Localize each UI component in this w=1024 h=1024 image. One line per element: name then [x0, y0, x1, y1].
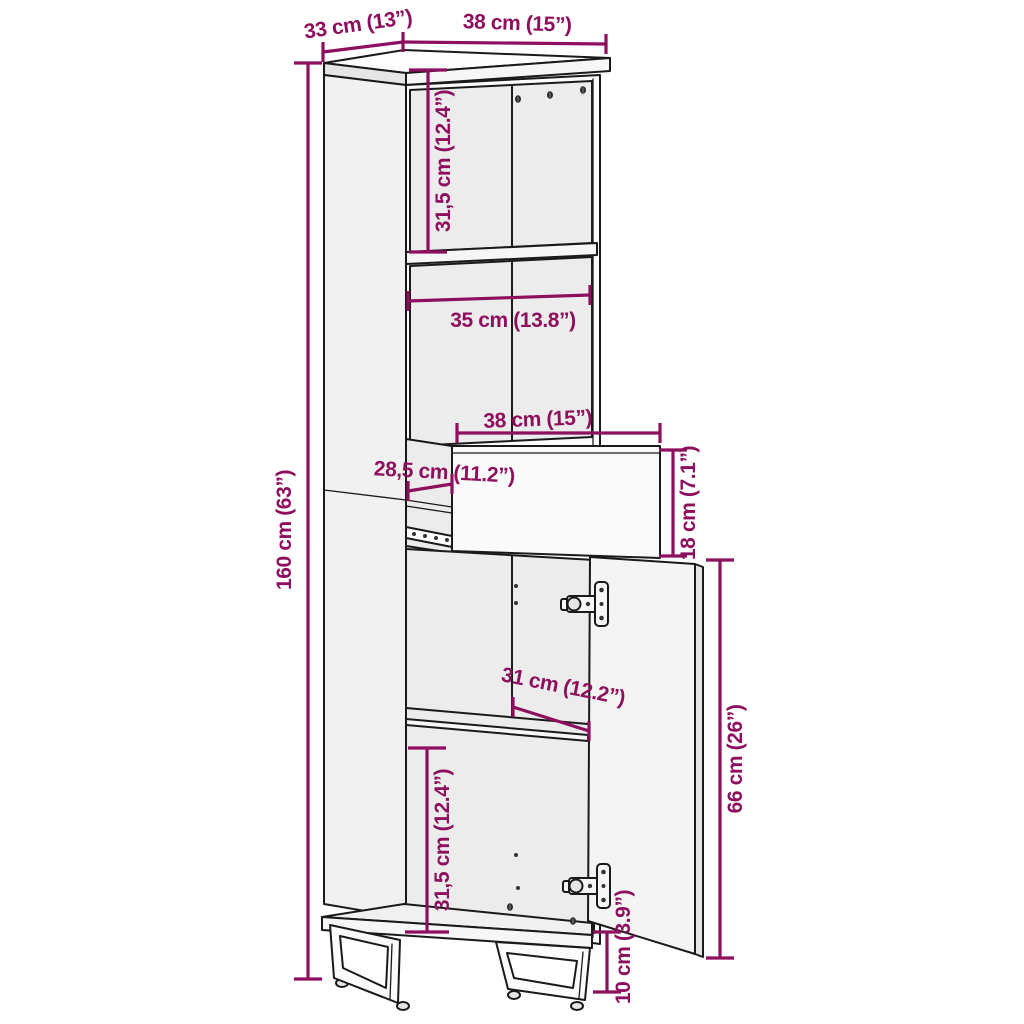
dim-upper-inner-height-label: 31,5 cm (12.4”) — [432, 90, 455, 232]
drawer-opening — [406, 439, 452, 553]
left-side-panel-face — [324, 75, 406, 918]
dimension-door-height: 66 cm (26”) — [706, 560, 747, 958]
shelf-pin-hole — [514, 601, 518, 605]
rail-hole — [445, 538, 449, 542]
dim-total-height-label: 160 cm (63”) — [273, 470, 296, 590]
rail-hole — [423, 534, 427, 538]
cabinet-diagram-svg: 33 cm (13”) 38 cm (15”) 31,5 cm (12.4”) … — [0, 0, 1024, 1024]
dim-top-depth-label: 33 cm (13”) — [303, 6, 414, 44]
dim-top-width-label: 38 cm (15”) — [462, 10, 572, 37]
dim-drawer-width-label: 38 cm (15”) — [483, 406, 593, 433]
dim-lower-inner-height-label: 31,5 cm (12.4”) — [431, 769, 454, 911]
dim-leg-height-label: 10 cm (3.9”) — [612, 890, 635, 1004]
dim-line — [403, 42, 606, 44]
shelf-pin-hole — [514, 584, 518, 588]
leg-foot — [508, 991, 520, 999]
leg-front-left — [330, 925, 409, 1010]
dim-drawer-height-label: 18 cm (7.1”) — [677, 446, 700, 560]
left-side-panel — [324, 75, 406, 918]
dim-inner-width-label: 35 cm (13.8”) — [450, 309, 576, 332]
product-dimension-diagram: 33 cm (13”) 38 cm (15”) 31,5 cm (12.4”) … — [0, 0, 1024, 1024]
dimension-drawer-height: 18 cm (7.1”) — [659, 446, 700, 560]
shelf-pin-hole — [516, 886, 520, 890]
dim-door-height-label: 66 cm (26”) — [724, 705, 747, 814]
door-edge-thickness — [695, 564, 703, 957]
screw-icon — [507, 903, 513, 911]
screw-icon — [547, 91, 553, 99]
rail-hole — [434, 536, 438, 540]
rail-hole — [412, 532, 416, 536]
shelf-pin-hole — [514, 853, 518, 857]
screw-icon — [580, 86, 586, 94]
dimension-total-height: 160 cm (63”) — [273, 63, 322, 979]
leg-front-right — [496, 942, 590, 1010]
screw-icon — [515, 95, 521, 103]
dimension-top-width: 38 cm (15”) — [403, 10, 606, 54]
screw-icon — [570, 917, 576, 925]
dim-line — [323, 42, 403, 52]
leg-foot — [571, 1002, 583, 1010]
